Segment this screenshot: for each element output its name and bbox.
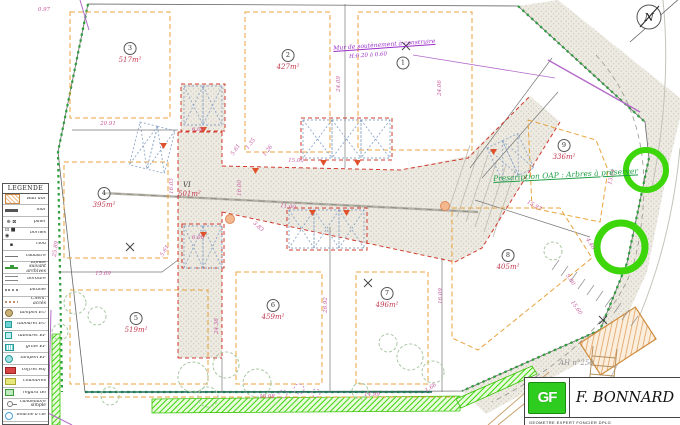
north-arrow: N — [630, 0, 680, 42]
surveyor-subtitle: GEOMETRE EXPERT FONCIER DPLG — [525, 417, 680, 425]
surveyor-logo-icon: GF — [525, 378, 570, 417]
glyphs-swatch-icon: ⊕ ⊠ — [5, 218, 18, 226]
legend-panel: LEGENDE Bâti durmur⊕ ⊠pilier⊡ ■ ◉bornes▪… — [2, 183, 49, 425]
legend-item: chambres — [3, 376, 48, 387]
grille-swatch-icon — [5, 344, 14, 351]
titleblock: GF F. BONNARD GEOMETRE EXPERT FONCIER DP… — [524, 377, 680, 425]
legend-item-label: tampon EP — [15, 356, 46, 361]
bordure-swatch-icon — [5, 276, 18, 281]
regard-swatch-icon — [5, 389, 14, 396]
legend-item: candélabre simple — [3, 399, 48, 410]
archives-swatch-icon — [5, 267, 18, 269]
legend-item-label: bornes — [20, 231, 46, 236]
chambres-swatch-icon — [5, 378, 16, 385]
legend-item: grille EP — [3, 342, 48, 353]
chem-swatch-icon — [5, 301, 18, 303]
legend-item: Bâti dur — [3, 194, 48, 205]
legend-item: bordure — [3, 274, 48, 285]
legend-item-label: bouche à clé — [15, 413, 46, 418]
coffret-swatch-icon — [5, 367, 16, 374]
tampon-eu-swatch-icon — [5, 309, 13, 317]
legend-item: tabouret EU — [3, 319, 48, 330]
legend-item-label: grille EP — [16, 345, 46, 350]
legend-item: bitume — [3, 285, 48, 296]
titleblock-main: GF F. BONNARD — [525, 378, 680, 417]
legend-item-label: tabouret EU — [14, 322, 46, 327]
surveyor-name: F. BONNARD — [570, 378, 680, 417]
glyphs-swatch-icon: ⊡ ■ ◉ — [5, 229, 18, 237]
legend-item: tampon EU — [3, 308, 48, 319]
legend-item-label: cadastre — [20, 254, 46, 259]
legend-title: LEGENDE — [3, 184, 48, 194]
legend-item: Limite suivant archives — [3, 262, 48, 273]
legend-item-label: bordure — [20, 277, 46, 282]
bouche-swatch-icon — [5, 412, 13, 420]
bitume-swatch-icon — [5, 289, 18, 291]
tab-ep-swatch-icon — [5, 332, 12, 339]
legend-item-label: tampon EU — [15, 311, 46, 316]
legend-item-label: tabouret EP — [14, 334, 46, 339]
site-plan-drawing: N — [0, 0, 680, 425]
legend-item-label: Bâti dur — [22, 197, 46, 202]
glyphs-swatch-icon: ▪ — [5, 241, 18, 249]
lamp-swatch-icon — [5, 400, 18, 408]
tab-eu-swatch-icon — [5, 321, 12, 328]
legend-item-label: chambres — [18, 379, 46, 384]
legend-item-label: coffret edf — [18, 368, 46, 373]
north-letter: N — [643, 11, 654, 24]
legend-item: bouche à clé — [3, 410, 48, 421]
legend-rows: Bâti durmur⊕ ⊠pilier⊡ ■ ◉bornes▪cloucada… — [3, 194, 48, 422]
legend-item: tabouret EP — [3, 331, 48, 342]
legend-item-label: regard tél — [16, 391, 46, 396]
legend-item-label: Limite suivant archives — [20, 261, 46, 275]
line-swatch-icon — [5, 256, 18, 257]
new-hedge-strips — [52, 334, 537, 425]
legend-item: ⊡ ■ ◉bornes — [3, 228, 48, 239]
legend-item-label: Chem. accès — [20, 297, 46, 306]
surveyor-logo-letters: GF — [528, 382, 566, 414]
legend-item: regard tél — [3, 388, 48, 399]
mur-swatch-icon — [5, 209, 18, 212]
legend-item-label: clou — [20, 242, 46, 247]
tampon-ep-swatch-icon — [5, 355, 13, 363]
legend-item-label: bitume — [20, 288, 46, 293]
site-plan-page: N VI 501m² 12427m²3517m²4395m²5519m²6459… — [0, 0, 680, 425]
legend-item: ▪clou — [3, 240, 48, 251]
legend-item-label: pilier — [20, 220, 46, 225]
legend-item: coffret edf — [3, 365, 48, 376]
bati-swatch-icon — [5, 194, 20, 204]
legend-item-label: mur — [20, 208, 46, 213]
legend-item: Chem. accès — [3, 297, 48, 308]
legend-item: mur — [3, 205, 48, 216]
legend-item-label: candélabre simple — [20, 400, 46, 409]
legend-item: tampon EP — [3, 353, 48, 364]
